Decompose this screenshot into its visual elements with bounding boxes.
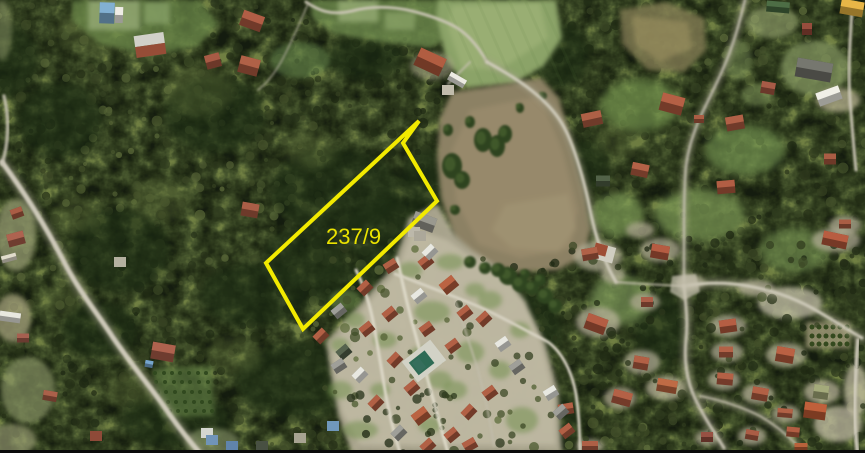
svg-text:237/9: 237/9 xyxy=(326,224,381,249)
